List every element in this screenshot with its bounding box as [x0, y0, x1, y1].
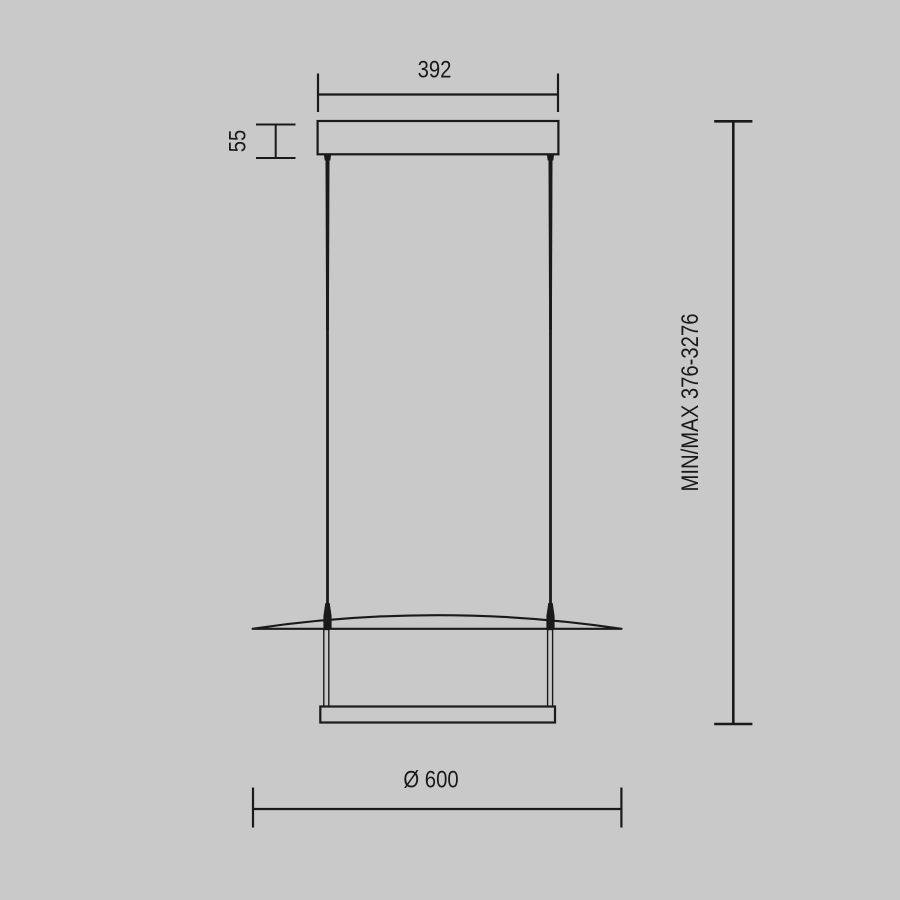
- svg-text:55: 55: [224, 130, 251, 153]
- svg-text:MIN/MAX 376-3276: MIN/MAX 376-3276: [676, 314, 703, 492]
- svg-text:Ø 600: Ø 600: [403, 766, 458, 793]
- svg-text:392: 392: [418, 56, 452, 83]
